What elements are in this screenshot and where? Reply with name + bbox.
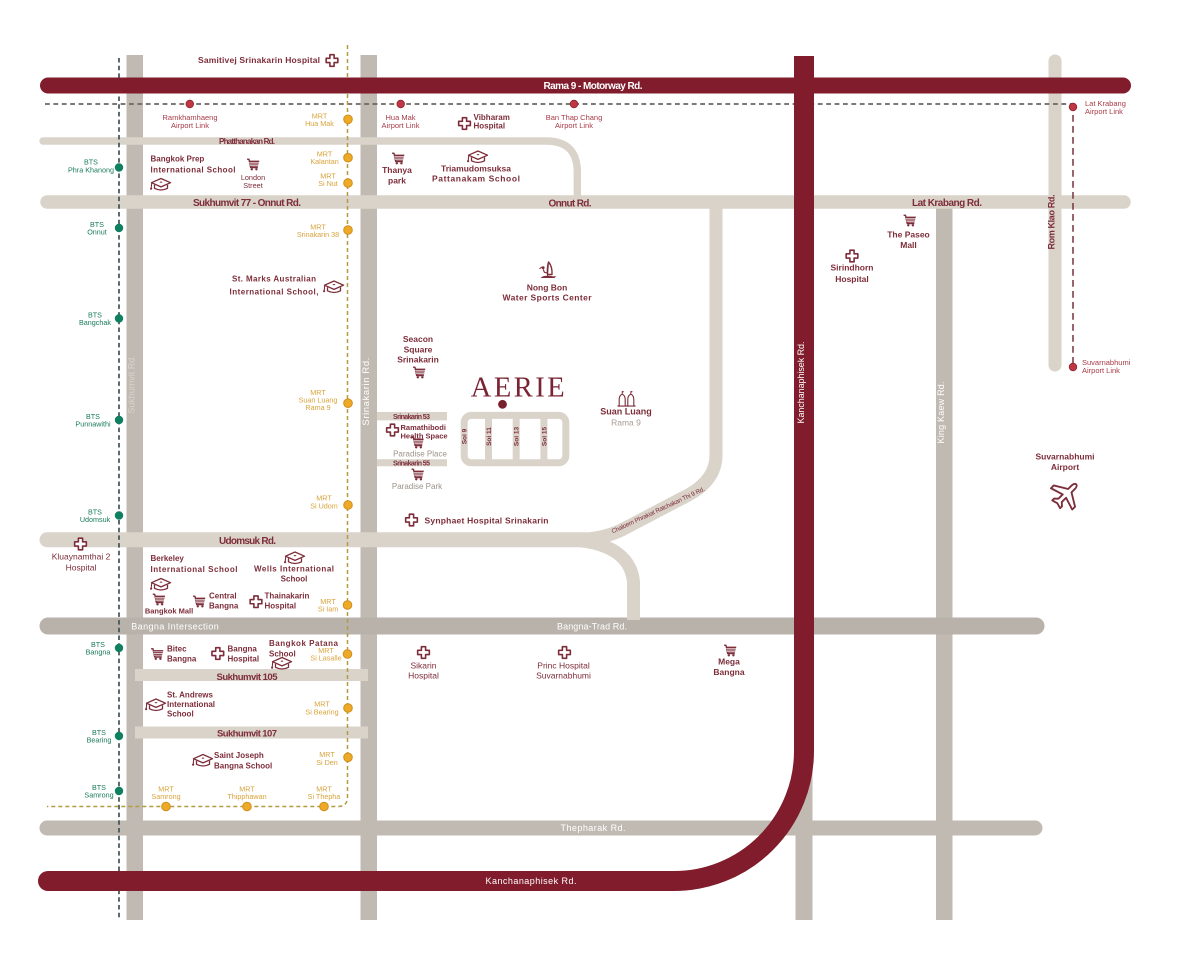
svg-text:Samitivej Srinakarin Hospital: Samitivej Srinakarin Hospital (198, 55, 320, 65)
svg-text:Sikarin: Sikarin (411, 661, 437, 671)
svg-text:Srinakarin 53: Srinakarin 53 (393, 414, 430, 421)
svg-text:Sukhumvit Rd.: Sukhumvit Rd. (127, 355, 137, 414)
svg-text:Bangna: Bangna (713, 667, 744, 677)
svg-text:Thepharak Rd.: Thepharak Rd. (561, 823, 626, 833)
svg-text:AERIE: AERIE (471, 373, 567, 404)
svg-text:Hospital: Hospital (228, 655, 260, 664)
svg-text:Hospital: Hospital (66, 563, 97, 573)
svg-text:Si Nut: Si Nut (318, 179, 338, 188)
svg-text:Bearing: Bearing (87, 736, 112, 745)
svg-text:Wells International: Wells International (254, 565, 334, 574)
svg-text:International School: International School (151, 565, 238, 574)
svg-text:Phra Khanong: Phra Khanong (68, 166, 114, 175)
svg-text:Samrong: Samrong (84, 791, 113, 800)
svg-text:Hospital: Hospital (835, 274, 869, 284)
svg-text:Thipphawan: Thipphawan (227, 792, 266, 801)
svg-text:School: School (167, 710, 194, 719)
svg-text:Airport: Airport (1051, 462, 1080, 472)
svg-text:Rom Klao Rd.: Rom Klao Rd. (1047, 195, 1057, 250)
svg-text:Suan Luang: Suan Luang (600, 407, 652, 417)
svg-text:Hospital: Hospital (474, 121, 506, 130)
svg-text:Paradise Place: Paradise Place (393, 450, 447, 459)
svg-text:Bangkok Prep: Bangkok Prep (151, 155, 205, 164)
svg-text:Synphaet Hospital Srinakarin: Synphaet Hospital Srinakarin (425, 516, 549, 526)
svg-text:Rama 9: Rama 9 (305, 403, 330, 412)
svg-text:Health Space: Health Space (401, 432, 448, 441)
svg-text:Sukhumvit 77 - Onnut Rd.: Sukhumvit 77 - Onnut Rd. (193, 198, 301, 209)
svg-text:Seacon: Seacon (403, 334, 433, 344)
svg-text:Kanchanaphisek Rd.: Kanchanaphisek Rd. (796, 342, 806, 424)
svg-text:Udomsuk Rd.: Udomsuk Rd. (219, 536, 276, 547)
svg-text:Hospital: Hospital (265, 602, 297, 611)
svg-text:Kalantan: Kalantan (310, 157, 338, 166)
svg-text:Mall: Mall (900, 240, 917, 250)
svg-text:Onnut: Onnut (87, 228, 107, 237)
svg-text:Bangna: Bangna (209, 602, 239, 611)
svg-text:Paradise Park: Paradise Park (392, 482, 443, 491)
svg-text:Thainakarin: Thainakarin (265, 592, 310, 601)
svg-text:Bangchak: Bangchak (79, 318, 111, 327)
svg-text:Airport Link: Airport Link (1085, 107, 1123, 116)
svg-text:Srinakarin: Srinakarin (397, 355, 439, 365)
svg-text:Si Iam: Si Iam (318, 605, 338, 614)
svg-text:Rama 9: Rama 9 (611, 418, 641, 428)
svg-text:Saint Joseph: Saint Joseph (214, 751, 264, 760)
svg-text:Si Thepha: Si Thepha (308, 792, 341, 801)
svg-text:Thanya: Thanya (382, 165, 412, 175)
svg-text:International School: International School (151, 166, 236, 175)
svg-text:Bangna School: Bangna School (214, 762, 272, 771)
svg-text:Phatthanakan Rd.: Phatthanakan Rd. (219, 137, 275, 146)
svg-text:School: School (281, 575, 308, 584)
svg-text:Airport Link: Airport Link (382, 121, 420, 130)
svg-text:Bangkok Mall: Bangkok Mall (145, 607, 193, 616)
svg-text:Hospital: Hospital (408, 671, 439, 681)
svg-text:Si Den: Si Den (316, 758, 338, 767)
svg-text:Triamudomsuksa: Triamudomsuksa (441, 164, 511, 174)
svg-text:International School,: International School, (230, 288, 319, 297)
svg-text:Suvarnabhumi: Suvarnabhumi (1035, 452, 1094, 462)
svg-text:Mega: Mega (718, 657, 740, 667)
svg-text:Srinakarin 38: Srinakarin 38 (297, 230, 339, 239)
svg-text:Onnut Rd.: Onnut Rd. (549, 199, 592, 210)
svg-text:Bangna: Bangna (228, 645, 258, 654)
svg-text:King Kaew Rd.: King Kaew Rd. (936, 382, 946, 444)
svg-text:Si Udom: Si Udom (310, 502, 338, 511)
svg-text:Bangna-Trad Rd.: Bangna-Trad Rd. (557, 622, 627, 632)
svg-text:Suvarnabhumi: Suvarnabhumi (536, 671, 591, 681)
svg-text:Airport Link: Airport Link (555, 121, 593, 130)
svg-text:The Paseo: The Paseo (887, 230, 930, 240)
svg-text:Bitec: Bitec (167, 645, 187, 654)
svg-text:Princ Hospital: Princ Hospital (537, 661, 590, 671)
svg-text:Airport Link: Airport Link (1082, 366, 1120, 375)
svg-text:Soi 11: Soi 11 (486, 427, 493, 446)
svg-text:Udomsuk: Udomsuk (80, 515, 111, 524)
svg-text:Hua Mak: Hua Mak (305, 119, 334, 128)
svg-text:Srinakarin Rd.: Srinakarin Rd. (361, 358, 372, 426)
svg-text:Bangkok Patana: Bangkok Patana (269, 639, 339, 648)
svg-text:Lat Krabang Rd.: Lat Krabang Rd. (912, 198, 982, 209)
svg-text:Square: Square (404, 345, 433, 355)
svg-text:Soi 15: Soi 15 (541, 427, 548, 447)
svg-text:Srinakarin 55: Srinakarin 55 (393, 461, 430, 468)
svg-text:Si Lasalle: Si Lasalle (310, 654, 341, 663)
svg-text:Bangna: Bangna (167, 655, 197, 664)
svg-text:Airport Link: Airport Link (171, 121, 209, 130)
svg-text:Kluaynamthai 2: Kluaynamthai 2 (52, 552, 111, 562)
svg-text:Water Sports Center: Water Sports Center (503, 293, 593, 303)
svg-text:International: International (167, 700, 215, 709)
svg-text:St. Marks Australian: St. Marks Australian (232, 275, 316, 284)
svg-text:park: park (388, 176, 406, 186)
svg-text:Rama 9 - Motorway Rd.: Rama 9 - Motorway Rd. (544, 81, 643, 92)
svg-text:Pattanakam School: Pattanakam School (432, 174, 520, 184)
svg-text:St. Andrews: St. Andrews (167, 691, 213, 700)
svg-text:Sukhumvit 105: Sukhumvit 105 (217, 672, 279, 683)
svg-text:Berkeley: Berkeley (151, 554, 185, 563)
svg-text:Soi 9: Soi 9 (461, 428, 468, 444)
svg-text:Street: Street (243, 181, 262, 190)
svg-text:Samrong: Samrong (151, 792, 180, 801)
svg-text:Punnawithi: Punnawithi (75, 420, 111, 429)
svg-text:Sirindhorn: Sirindhorn (831, 263, 874, 273)
svg-text:Nong Bon: Nong Bon (527, 283, 568, 293)
svg-text:Soi 13: Soi 13 (514, 427, 521, 447)
svg-text:Bangna Intersection: Bangna Intersection (131, 622, 219, 632)
svg-text:Sukhumvit 107: Sukhumvit 107 (217, 729, 277, 740)
svg-text:Central: Central (209, 592, 237, 601)
svg-text:Si Bearing: Si Bearing (305, 708, 338, 717)
svg-text:Kanchanaphisek Rd.: Kanchanaphisek Rd. (486, 876, 577, 886)
svg-text:Bangna: Bangna (86, 648, 111, 657)
